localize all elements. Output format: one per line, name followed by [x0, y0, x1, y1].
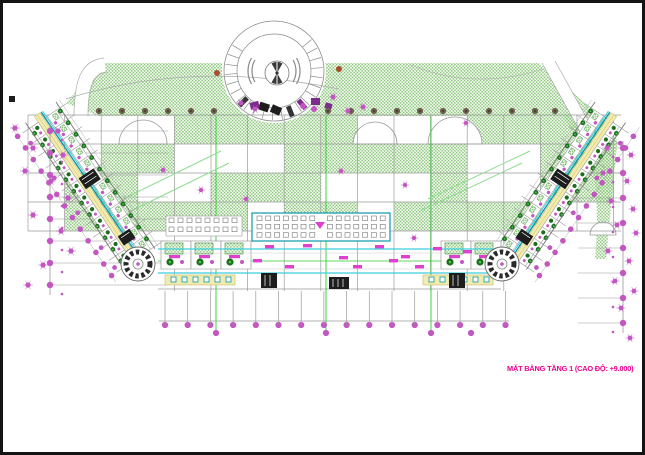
plan-svg	[3, 3, 645, 455]
plan-title-label: MẶT BẰNG TẦNG 1 (CAO ĐỘ: +9.000)	[507, 364, 633, 373]
cad-floorplan-canvas: MẶT BẰNG TẦNG 1 (CAO ĐỘ: +9.000)	[0, 0, 645, 455]
